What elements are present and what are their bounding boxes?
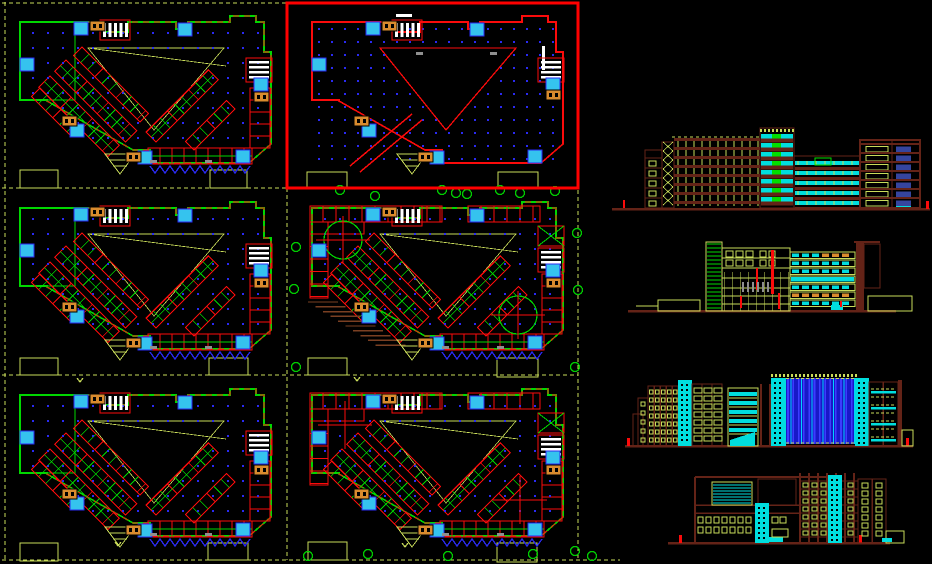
floor-plan-2[interactable]	[312, 14, 564, 174]
elevation-1[interactable]	[612, 128, 930, 210]
floor-plan-3[interactable]	[20, 202, 272, 360]
elevation-4[interactable]	[668, 473, 904, 543]
cad-viewport[interactable]	[0, 0, 932, 564]
site-boundary	[2, 2, 620, 562]
tree-symbols	[77, 186, 597, 561]
floor-plan-1[interactable]	[20, 16, 272, 174]
floor-plan-5[interactable]	[20, 389, 272, 547]
floor-plan-6[interactable]	[310, 389, 564, 547]
elevation-3[interactable]	[625, 374, 913, 446]
cad-drawing-canvas[interactable]	[0, 0, 932, 564]
floor-plan-4[interactable]	[308, 202, 564, 360]
elevation-2[interactable]	[628, 242, 912, 311]
